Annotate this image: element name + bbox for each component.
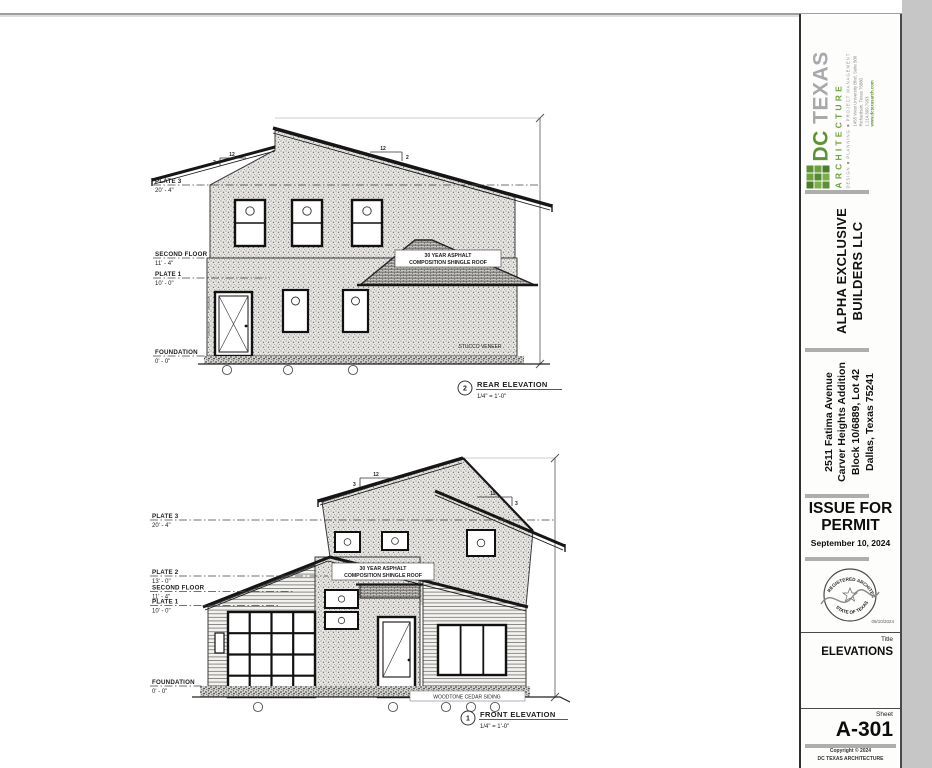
rear-title-number: 2 — [463, 386, 467, 393]
front-door — [378, 617, 415, 697]
rear-elevation-drawing: 30 YEAR ASPHALT COMPOSITION SHINGLE ROOF… — [60, 100, 580, 410]
rear-level-plate3: PLATE 3 — [155, 178, 182, 185]
front-level-foundation: FOUNDATION — [152, 679, 195, 686]
project-block-lot: Block 10/6889, Lot 42 — [850, 369, 862, 475]
rear-level-plate1: PLATE 1 — [155, 271, 182, 278]
rear-second-floor-windows — [235, 200, 382, 246]
svg-text:0' - 0": 0' - 0" — [155, 359, 170, 365]
sheet-title: ELEVATIONS — [821, 646, 893, 658]
rear-keynote-tags — [222, 365, 357, 374]
front-door-awning — [356, 585, 423, 599]
front-level-secondfloor: SECOND FLOOR — [152, 585, 205, 592]
front-level-plate2: PLATE 2 — [152, 569, 179, 576]
title-block: DC TEXAS ARCHITECTURE DESIGN ■ PLANNING … — [799, 14, 902, 768]
drawing-sheet: 30 YEAR ASPHALT COMPOSITION SHINGLE ROOF… — [0, 0, 932, 768]
front-siding-note: WOODTONE CEDAR SIDING — [410, 691, 525, 701]
rear-title-scale: 1/4" = 1'-0" — [477, 394, 506, 400]
right-wing-window — [438, 625, 506, 675]
front-roof-note: 30 YEAR ASPHALT COMPOSITION SHINGLE ROOF — [332, 563, 434, 580]
firm-website: www.dctexasarch.com — [870, 24, 876, 127]
front-drawing-title: 1 FRONT ELEVATION 1/4" = 1'-0" — [461, 710, 568, 730]
rear-slope-run: 12 — [380, 146, 386, 152]
firm-logo-block: DC TEXAS ARCHITECTURE DESIGN ■ PLANNING … — [807, 24, 895, 189]
front-level-plate3: PLATE 3 — [152, 513, 179, 520]
rear-roof-note-line1: 30 YEAR ASPHALT — [425, 253, 473, 259]
svg-text:12: 12 — [490, 491, 496, 497]
front-roof-note-line1: 30 YEAR ASPHALT — [360, 566, 408, 572]
svg-text:10' - 0": 10' - 0" — [155, 281, 174, 287]
svg-text:12: 12 — [229, 152, 235, 158]
front-siding-note-text: WOODTONE CEDAR SIDING — [433, 695, 501, 701]
rear-slope-rise: 2 — [406, 155, 409, 161]
front-title-text: FRONT ELEVATION — [480, 710, 556, 719]
svg-text:3: 3 — [515, 501, 518, 507]
svg-text:2: 2 — [213, 160, 216, 166]
rear-title-text: REAR ELEVATION — [477, 380, 548, 389]
front-title-scale: 1/4" = 1'-0" — [480, 724, 509, 730]
front-title-number: 1 — [466, 716, 470, 723]
svg-text:11' - 4": 11' - 4" — [155, 261, 173, 267]
title-label: Title — [881, 636, 893, 643]
seal-date: 09/10/2024 — [871, 619, 894, 624]
issue-status: ISSUE FOR PERMIT — [801, 500, 900, 534]
architect-seal: REGISTERED ARCHITECT STATE OF TEXAS — [819, 564, 881, 626]
project-city: Dallas, Texas 75241 — [864, 373, 876, 471]
firm-logo-icon — [807, 166, 830, 189]
project-addition: Carver Heights Addition — [836, 362, 848, 482]
garage-slot-window — [215, 633, 224, 653]
svg-text:10' - 0": 10' - 0" — [152, 609, 171, 615]
client-line2: BUILDERS LLC — [850, 222, 865, 321]
project-address: 2511 Fatima Avenue — [823, 372, 835, 472]
rear-door — [215, 292, 252, 356]
copyright: Copyright © 2024 DC TEXAS ARCHITECTURE — [801, 748, 900, 763]
front-level-labels: PLATE 3 20' - 4" PLATE 2 13' - 0" SECOND… — [152, 513, 205, 695]
svg-text:20' - 4": 20' - 4" — [152, 523, 171, 529]
sheet-number: A-301 — [836, 718, 893, 742]
scan-margin — [902, 0, 932, 768]
client-block: ALPHA EXCLUSIVE BUILDERS LLC — [807, 194, 893, 348]
svg-text:STATE OF TEXAS: STATE OF TEXAS — [835, 600, 869, 615]
divider-line — [801, 708, 900, 709]
firm-abbr: DC — [810, 130, 833, 161]
rear-wall-note: STUCCO VENEER — [458, 344, 501, 350]
issue-date: September 10, 2024 — [801, 538, 900, 548]
rear-drawing-title: 2 REAR ELEVATION 1/4" = 1'-0" — [458, 380, 562, 400]
sheet-label: Sheet — [876, 711, 893, 718]
firm-division: ARCHITECTURE — [834, 24, 844, 189]
rear-level-foundation: FOUNDATION — [155, 349, 198, 356]
rear-roof-note: 30 YEAR ASPHALT COMPOSITION SHINGLE ROOF — [395, 250, 501, 267]
front-elevation-drawing: 30 YEAR ASPHALT COMPOSITION SHINGLE ROOF… — [60, 445, 600, 745]
rear-foundation-hatch — [204, 356, 524, 364]
firm-name: TEXAS — [810, 51, 833, 124]
rear-level-labels: PLATE 3 20' - 4" SECOND FLOOR 11' - 4" P… — [155, 178, 208, 365]
svg-text:20' - 4": 20' - 4" — [155, 188, 174, 194]
front-roof-note-line2: COMPOSITION SHINGLE ROOF — [344, 573, 422, 579]
firm-contact: 1455 West University Blvd, Suite 500 Ric… — [853, 24, 876, 127]
rear-level-secondfloor: SECOND FLOOR — [155, 251, 208, 258]
divider-line — [801, 632, 900, 633]
front-slope-rise: 3 — [353, 482, 356, 488]
front-level-plate1: PLATE 1 — [152, 599, 179, 606]
firm-tagline: DESIGN ■ PLANNING ■ PROJECT MANAGEMENT — [846, 24, 851, 189]
seal-arc-bottom: STATE OF TEXAS — [835, 600, 869, 615]
svg-text:0' - 0": 0' - 0" — [152, 689, 167, 695]
project-block: 2511 Fatima Avenue Carver Heights Additi… — [807, 352, 893, 492]
front-slope-run: 12 — [373, 472, 379, 478]
front-keynote-tags — [253, 702, 499, 711]
rear-roof-note-line2: COMPOSITION SHINGLE ROOF — [409, 260, 487, 266]
divider — [805, 557, 869, 561]
sheet-top-border — [0, 13, 932, 15]
divider — [805, 494, 869, 498]
client-line1: ALPHA EXCLUSIVE — [834, 208, 849, 334]
